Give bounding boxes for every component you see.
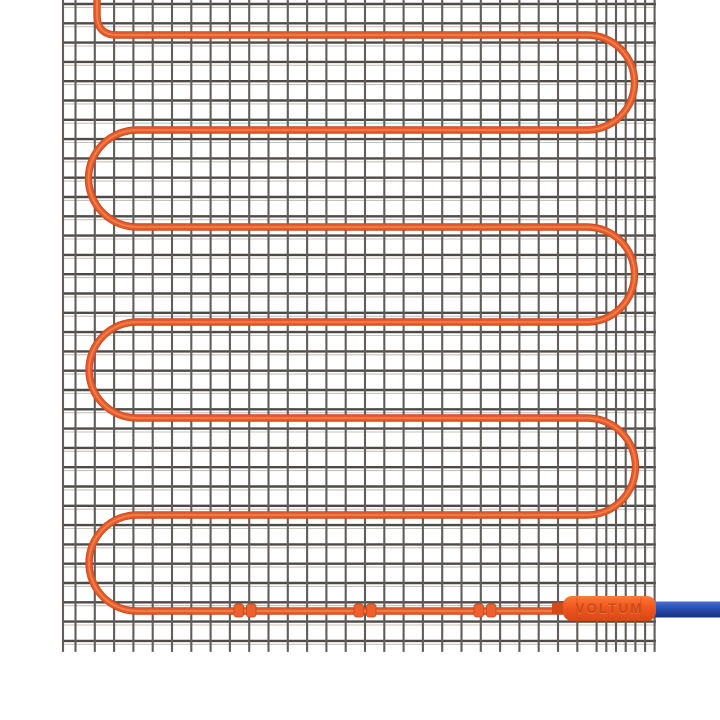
- cable-clip: [247, 604, 257, 617]
- cable-clip: [474, 604, 484, 617]
- cable-clip: [234, 604, 244, 617]
- brand-label: VOLTUM: [576, 601, 644, 616]
- cable-clip: [487, 604, 497, 617]
- cold-lead-cable: [650, 602, 720, 618]
- heating-cable: [88, 0, 635, 611]
- heating-mat-scene: VOLTUM VOLTUM: [0, 0, 720, 720]
- cable-clip: [367, 604, 377, 617]
- mesh-grid: [62, 0, 656, 652]
- heating-mat-product-photo: VOLTUM VOLTUM: [0, 0, 720, 720]
- heating-cable-outer: [88, 0, 635, 611]
- cable-clip: [354, 604, 364, 617]
- heating-cable-core: [88, 0, 635, 611]
- heating-cable-highlight: [88, 0, 635, 611]
- power-connector: VOLTUM VOLTUM: [552, 596, 656, 621]
